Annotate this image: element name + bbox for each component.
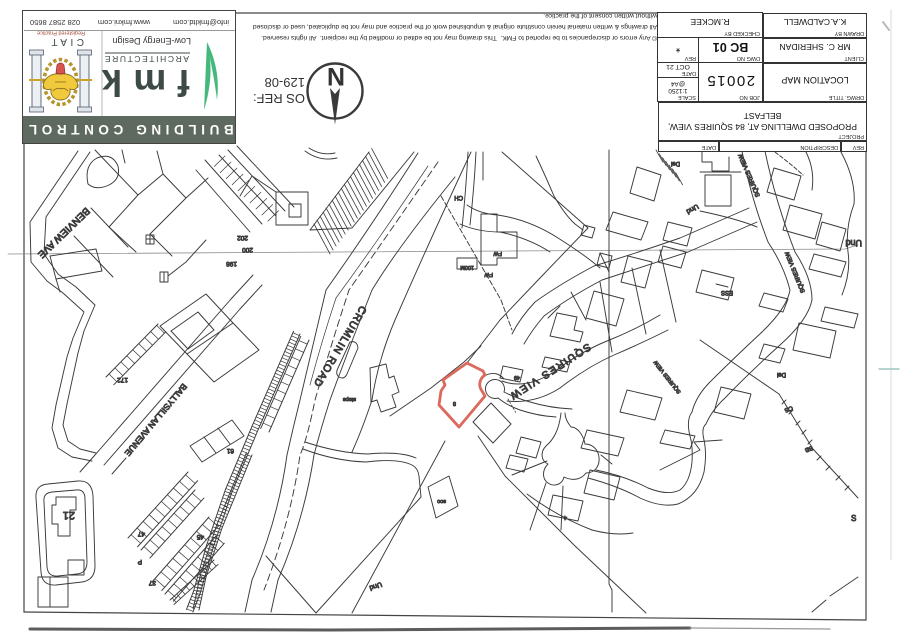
svg-text:OS REF:: OS REF:	[253, 91, 305, 106]
svg-text:P: P	[138, 558, 142, 565]
svg-text:FW: FW	[484, 271, 493, 277]
svg-text:CRUMLIN ROAD: CRUMLIN ROAD	[310, 303, 368, 389]
svg-text:61: 61	[226, 447, 234, 454]
svg-text:4: 4	[564, 514, 567, 520]
svg-text:SQUIRES VIEW: SQUIRES VIEW	[737, 153, 762, 198]
svg-text:8: 8	[453, 400, 456, 406]
svg-text:ESS: ESS	[721, 289, 733, 295]
svg-text:49: 49	[514, 374, 520, 380]
svg-text:Und: Und	[845, 238, 862, 248]
svg-text:Low-Energy Design: Low-Energy Design	[112, 36, 191, 46]
svg-text:S: S	[851, 514, 856, 523]
svg-text:200: 200	[242, 246, 253, 253]
svg-text:45: 45	[196, 533, 204, 540]
svg-text:BB: BB	[804, 444, 814, 452]
svg-text:Del: Del	[671, 160, 680, 166]
svg-text:21: 21	[63, 509, 75, 521]
svg-text:ARCHITECTURE: ARCHITECTURE	[103, 54, 189, 64]
svg-text:BALLYSILLAN AVENUE: BALLYSILLAN AVENUE	[123, 382, 190, 459]
svg-text:BENVIEW AVE: BENVIEW AVE	[35, 205, 92, 260]
svg-text:soo: soo	[437, 498, 446, 504]
svg-text:100M: 100M	[460, 264, 474, 270]
svg-text:172: 172	[117, 376, 128, 383]
svg-text:CIAT: CIAT	[48, 36, 84, 47]
svg-text:198: 198	[226, 260, 237, 267]
svg-text:FW: FW	[493, 250, 502, 256]
svg-text:Registered Practice: Registered Practice	[37, 31, 85, 36]
svg-text:steps: steps	[343, 396, 356, 402]
svg-text:N: N	[327, 62, 345, 90]
svg-text:Del: Del	[777, 371, 786, 377]
svg-text:37: 37	[148, 579, 156, 586]
svg-text:202: 202	[237, 234, 248, 241]
svg-text:SQUIRES VIEW: SQUIRES VIEW	[785, 250, 807, 293]
svg-text:129-08: 129-08	[265, 75, 305, 90]
svg-text:Und: Und	[685, 202, 700, 215]
svg-text:CS: CS	[783, 404, 793, 412]
svg-text:SQUIRES VIEW: SQUIRES VIEW	[653, 358, 683, 394]
svg-text:47: 47	[137, 530, 145, 537]
svg-text:f m k: f m k	[101, 62, 190, 103]
svg-text:Und: Und	[368, 580, 383, 591]
svg-text:SQUIRES VIEW: SQUIRES VIEW	[507, 340, 593, 402]
svg-text:CH: CH	[454, 194, 463, 200]
